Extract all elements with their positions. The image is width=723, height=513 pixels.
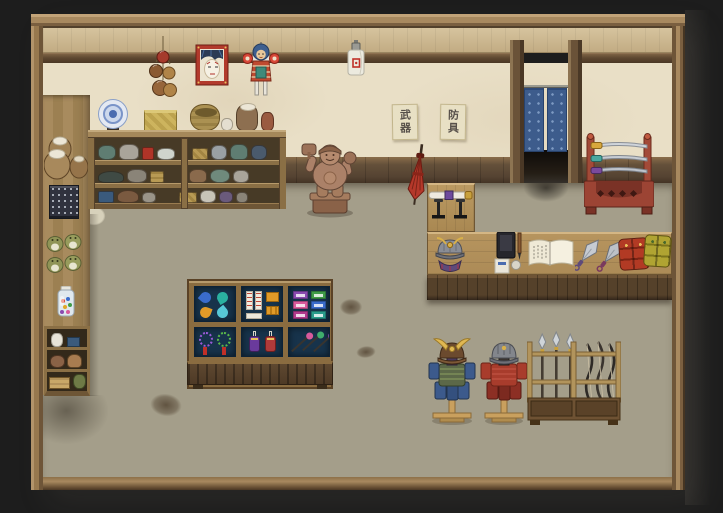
case-window-packets [288,286,330,322]
door-opening [524,150,568,183]
weapons-scroll-text: 武器 [399,109,410,135]
brown-pot [67,354,82,368]
counter-kabuto [431,236,469,272]
armor-scroll-text: 防具 [447,109,458,135]
brown-pot [50,355,65,368]
door-post-left [510,40,524,183]
door-post-right [568,40,582,183]
sheathed-katana-stand [428,186,474,222]
game-screenshot: 武器 防具 [0,0,723,513]
shelf-row [96,165,280,183]
wooden-box [49,377,70,389]
map-frame-bottom [41,477,674,490]
white-jar [51,333,63,347]
shelf-top-board [88,130,286,138]
pottery-shelf[interactable] [88,97,286,212]
woven-box [144,110,177,131]
green-pouch [73,374,86,389]
merchant-statue[interactable] [297,138,363,218]
floor-stain [352,343,380,362]
round-basket [190,104,220,131]
case-base [187,361,333,385]
weapons-scroll: 武器 [392,104,419,140]
shelf-board [47,347,87,350]
wall-rail-right [582,53,672,63]
bows [586,342,614,404]
shelf-post [279,138,286,209]
patterned-cloth [49,185,79,219]
blue-plate [98,99,128,133]
shelf-row [96,188,280,203]
noren-panel-left [524,88,544,152]
floor-stain [336,296,366,318]
case-window-magatama [194,286,236,322]
map-frame-top [31,14,685,28]
shelf-row [96,138,280,160]
platform-shadow [43,395,121,467]
map-frame-right [672,26,685,490]
case-window-omamori [241,327,283,357]
large-jar [236,104,258,131]
spears [539,332,574,401]
doorway-noren[interactable] [524,88,568,152]
samurai-armor-horned[interactable] [427,336,477,426]
shelf-post [88,138,95,209]
side-shelf[interactable] [44,326,90,396]
small-vase [261,112,274,131]
backdrop-glow [685,10,711,505]
shelf-post [181,138,188,209]
case-window-charms [241,286,283,322]
frog-figurines [46,231,82,279]
candy-jar [56,286,76,318]
case-foot [193,385,203,389]
hanging-doll [243,42,279,100]
open-ledger [527,238,575,268]
polearm-rack[interactable] [527,330,621,426]
storage-jars [44,135,89,181]
wall-lantern [346,40,366,80]
map-frame-left [31,26,43,490]
kabuki-portrait [195,42,229,88]
hanging-gourds [148,36,178,106]
case-window-necklaces [194,327,236,357]
floor-stain [143,387,189,423]
noren-panel-right [547,88,567,152]
samurai-armor-red[interactable] [480,336,528,426]
game-viewport[interactable]: 武器 防具 [31,14,685,490]
armor-bundle-yellow [643,234,672,268]
blue-box [67,337,80,347]
case-window-kanzashi [288,327,330,357]
armor-scroll: 防具 [440,104,467,140]
platform-edge-shadow [90,214,99,396]
calligraphy-set [493,232,527,274]
shelf-board [47,369,87,372]
counter-front [427,275,672,300]
case-foot [317,385,327,389]
display-case[interactable] [187,279,333,389]
